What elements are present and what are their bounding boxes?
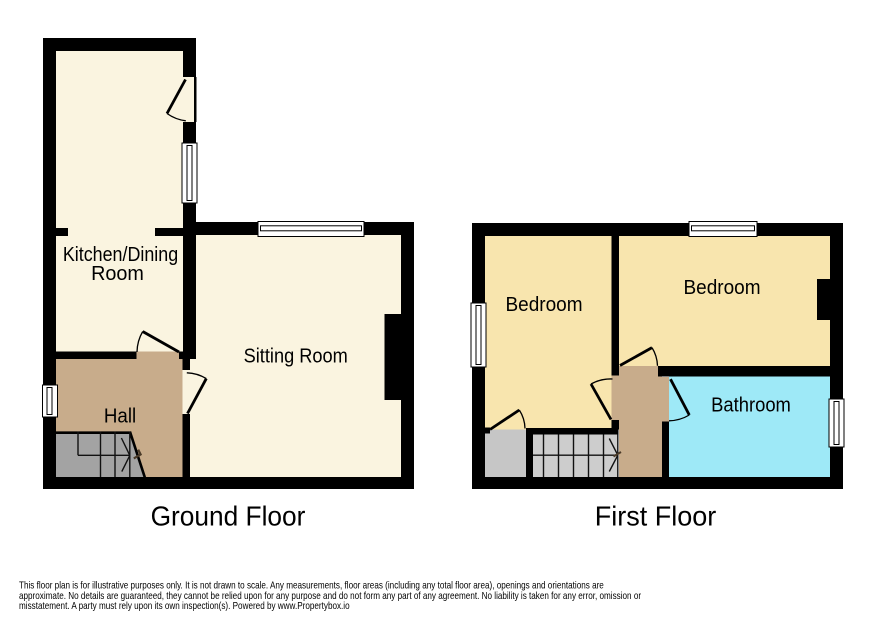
svg-text:First Floor: First Floor	[595, 500, 717, 532]
svg-text:Bedroom: Bedroom	[505, 294, 582, 317]
svg-text:Bathroom: Bathroom	[711, 395, 791, 417]
svg-text:Sitting Room: Sitting Room	[244, 346, 348, 368]
svg-text:Hall: Hall	[104, 405, 136, 428]
svg-text:Room: Room	[91, 263, 144, 285]
svg-text:Ground Floor: Ground Floor	[151, 500, 306, 532]
svg-text:misstatement. A party must rel: misstatement. A party must rely upon its…	[19, 600, 350, 611]
svg-text:Bedroom: Bedroom	[683, 277, 760, 300]
